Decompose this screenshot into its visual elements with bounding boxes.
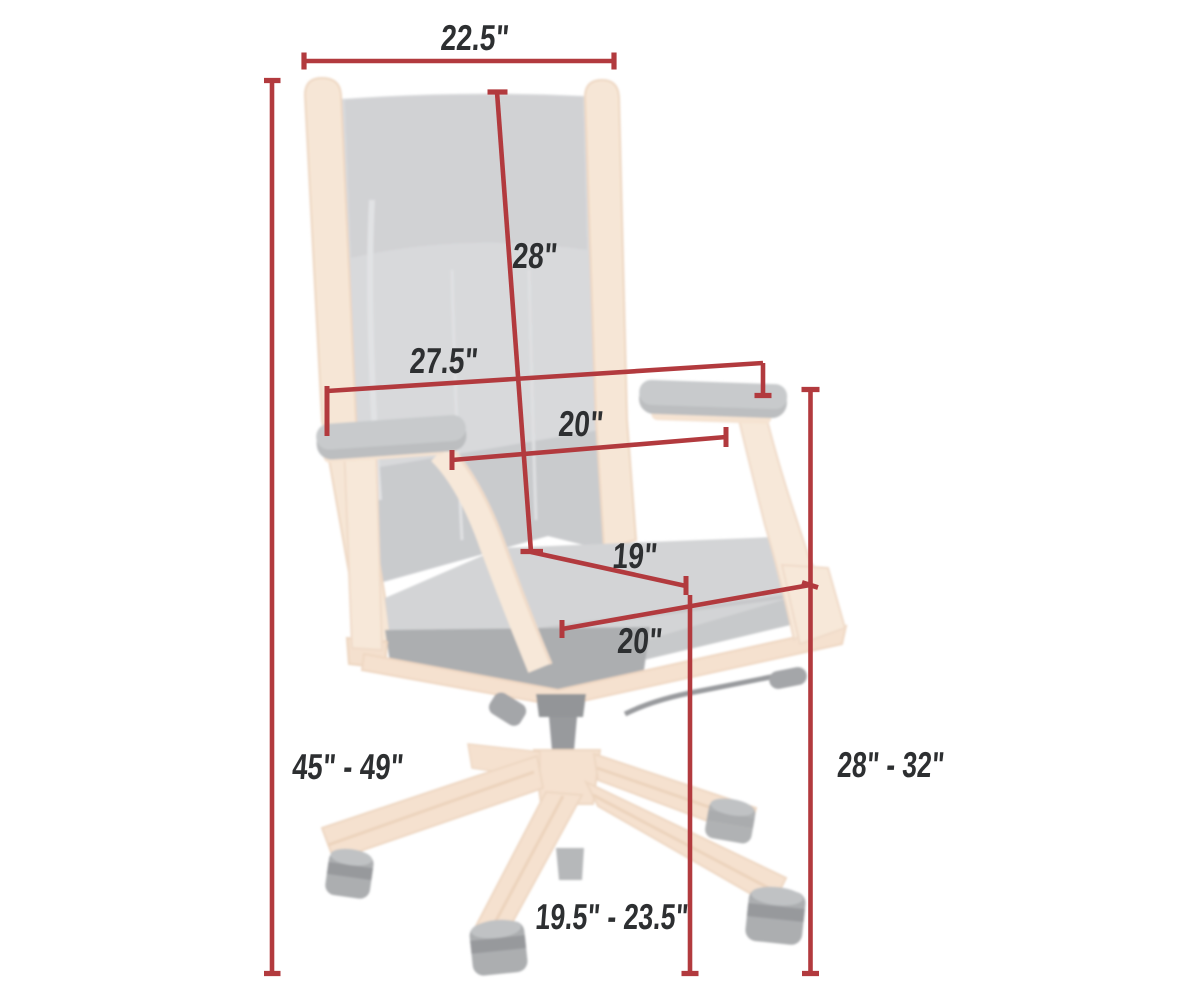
svg-text:20": 20" <box>616 621 664 661</box>
svg-text:28": 28" <box>511 236 559 276</box>
svg-text:45" - 49": 45" - 49" <box>291 746 405 786</box>
svg-text:27.5": 27.5" <box>408 341 479 381</box>
svg-text:22.5": 22.5" <box>439 18 510 58</box>
svg-text:19": 19" <box>611 536 659 576</box>
svg-text:20": 20" <box>557 404 605 444</box>
svg-text:28" - 32": 28" - 32" <box>836 744 946 785</box>
svg-text:19.5" - 23.5": 19.5" - 23.5" <box>534 896 690 937</box>
